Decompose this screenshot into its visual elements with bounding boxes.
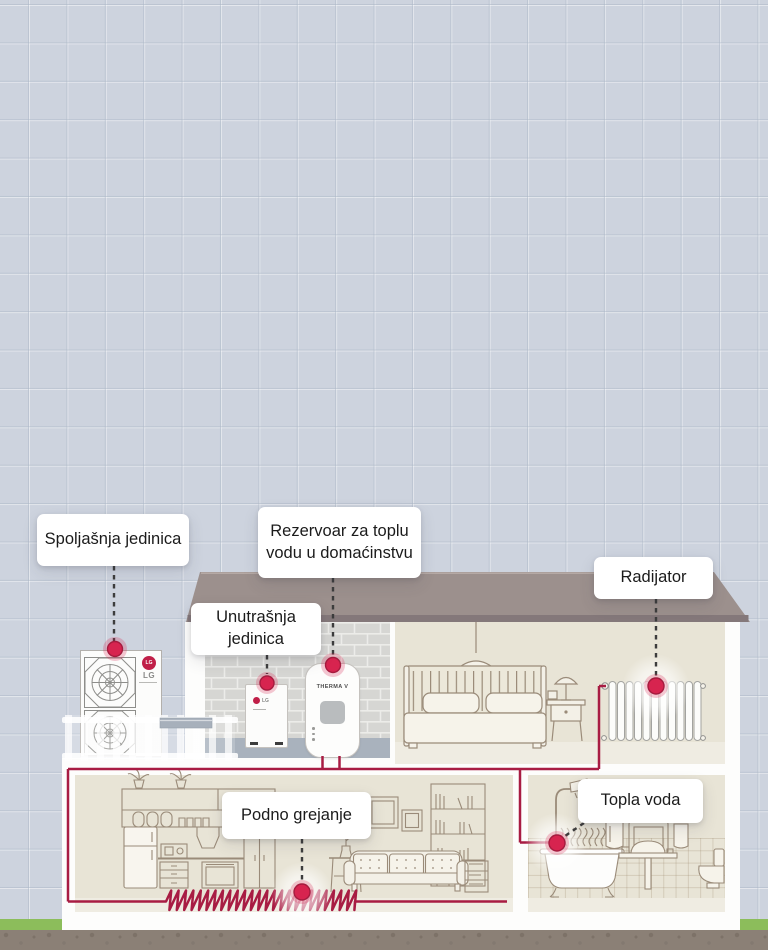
potted-plant-icon <box>170 769 191 788</box>
vase-icon <box>340 846 352 858</box>
table-lamp-icon <box>548 678 577 701</box>
towel <box>606 822 623 849</box>
pillow <box>423 693 479 713</box>
towel <box>674 824 688 848</box>
label-hot-water-tank: Rezervoar za toplu vodu u domaćinstvu <box>258 507 421 578</box>
radiator-feed <box>599 686 606 769</box>
hotspot-outdoor-unit[interactable] <box>103 637 127 661</box>
bed-base <box>404 713 546 743</box>
nightstand <box>547 700 585 741</box>
bedroom-furniture <box>404 622 585 748</box>
hotspot-radiator[interactable] <box>644 674 668 698</box>
hotspot-floor-heating[interactable] <box>290 880 314 904</box>
label-radiator: Radijator <box>594 557 713 599</box>
hotspot-hot-water[interactable] <box>545 831 569 855</box>
hotspot-tank[interactable] <box>321 653 345 677</box>
label-hot-water: Topla voda <box>578 779 703 823</box>
refrigerant-pipe <box>160 718 212 728</box>
range-hood <box>197 827 219 848</box>
pillow <box>486 693 542 713</box>
label-indoor-unit: Unutrašnja jedinica <box>191 603 321 655</box>
label-floor-heating: Podno grejanje <box>222 792 371 839</box>
scene-canvas: LG LG LG THERMA V <box>0 0 768 950</box>
oven <box>202 862 238 888</box>
hotspot-indoor-unit[interactable] <box>256 672 278 694</box>
toilet <box>699 849 724 888</box>
label-outdoor-unit: Spoljašnja jedinica <box>37 514 189 566</box>
tank-pipes <box>323 756 340 769</box>
potted-plant-icon <box>128 769 149 788</box>
